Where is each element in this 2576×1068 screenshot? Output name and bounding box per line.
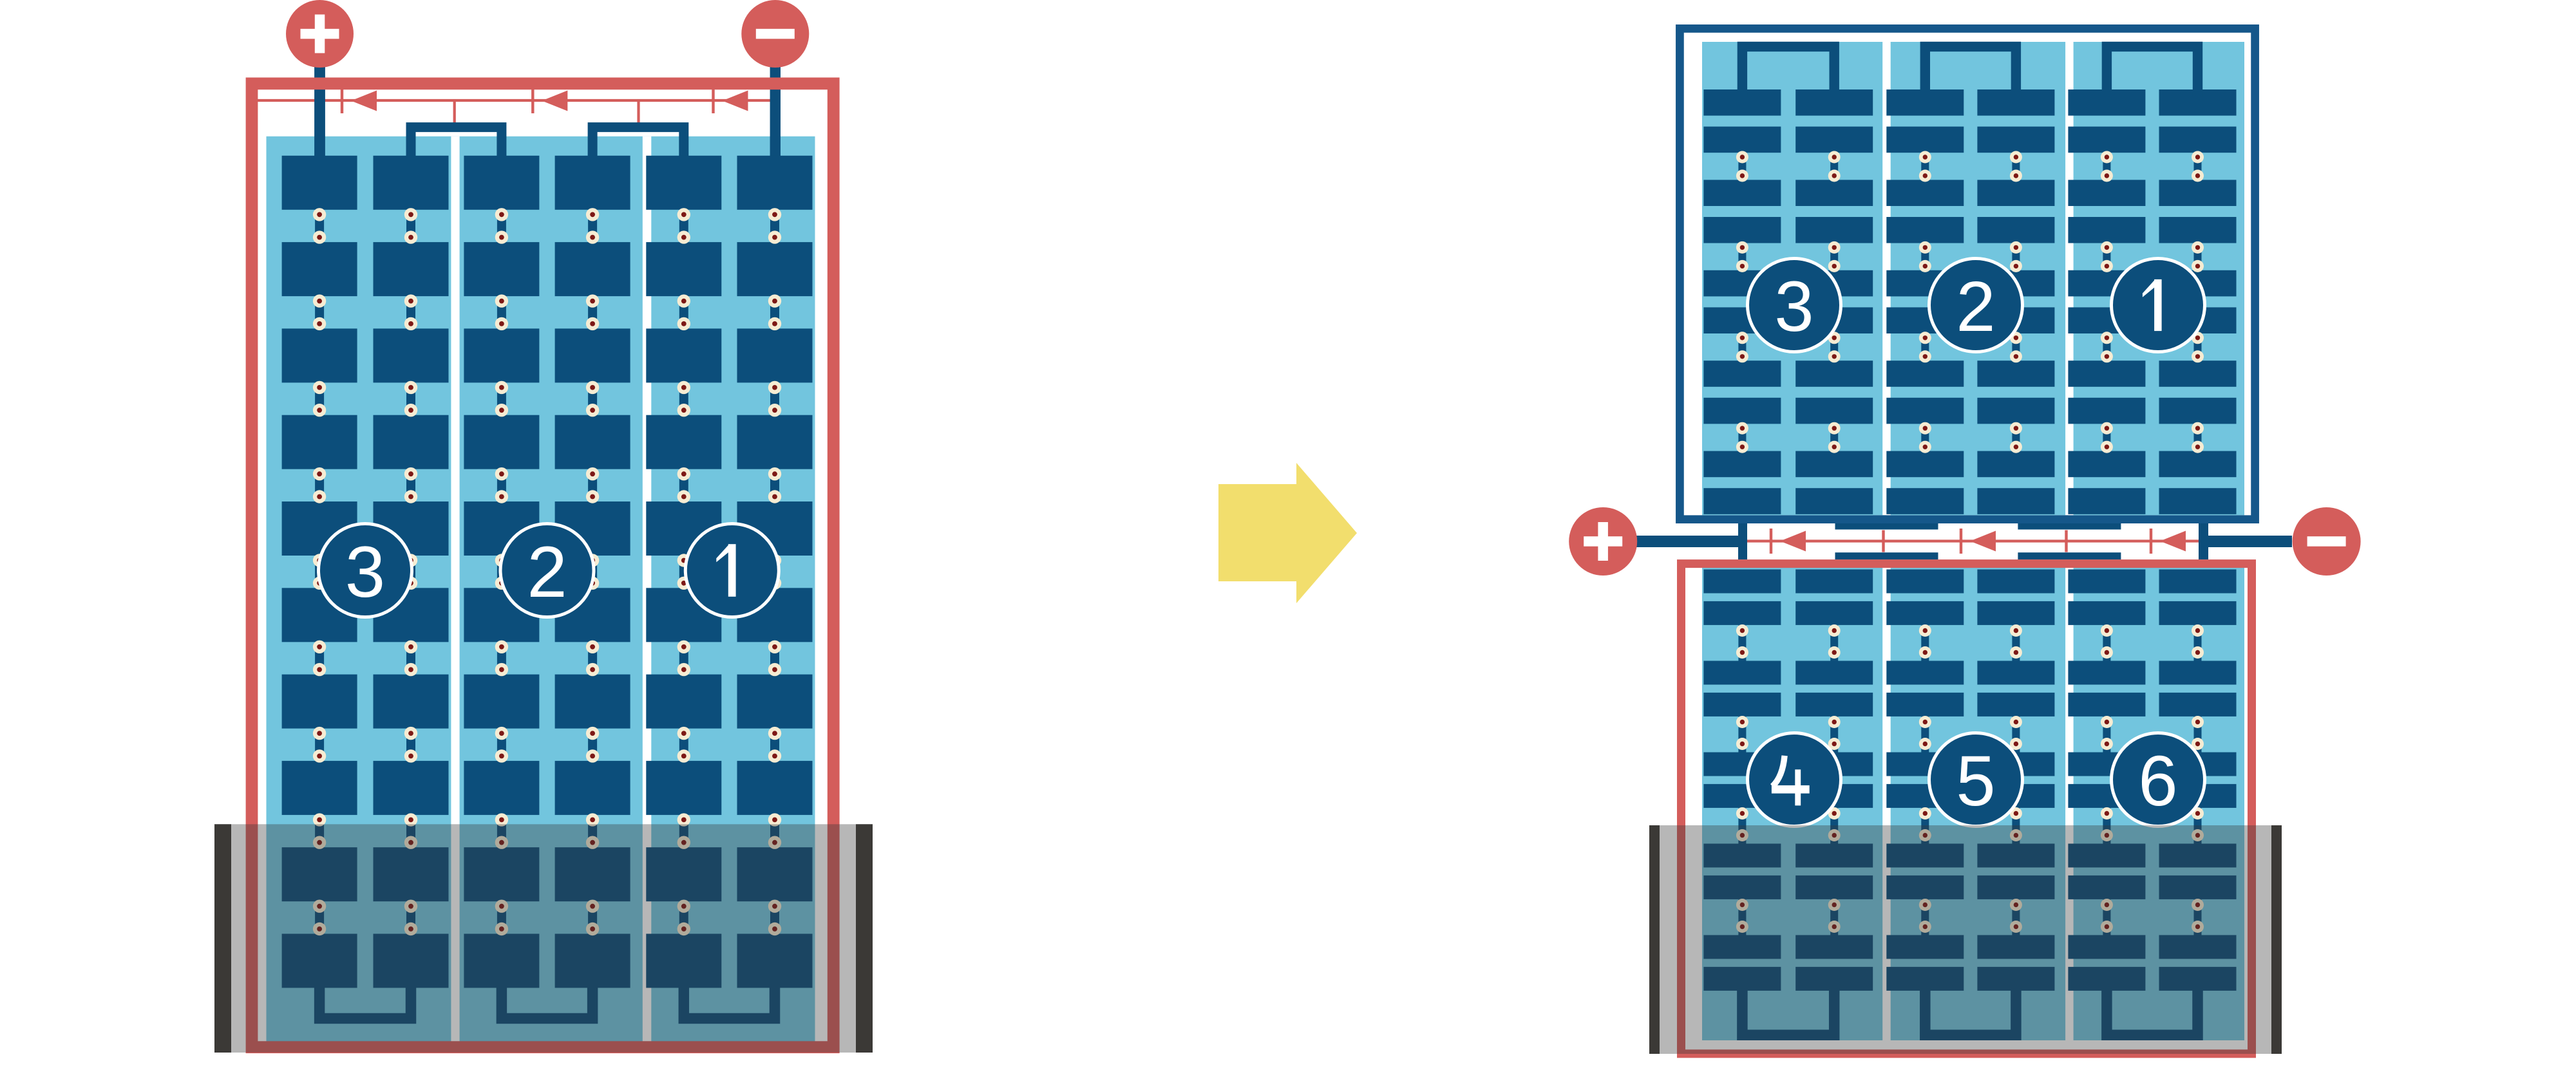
svg-text:2: 2	[1956, 267, 1995, 346]
svg-text:3: 3	[345, 532, 385, 612]
svg-text:2: 2	[527, 532, 567, 612]
svg-text:5: 5	[1956, 742, 1995, 821]
svg-text:6: 6	[2138, 742, 2177, 821]
svg-text:3: 3	[1774, 267, 1814, 346]
